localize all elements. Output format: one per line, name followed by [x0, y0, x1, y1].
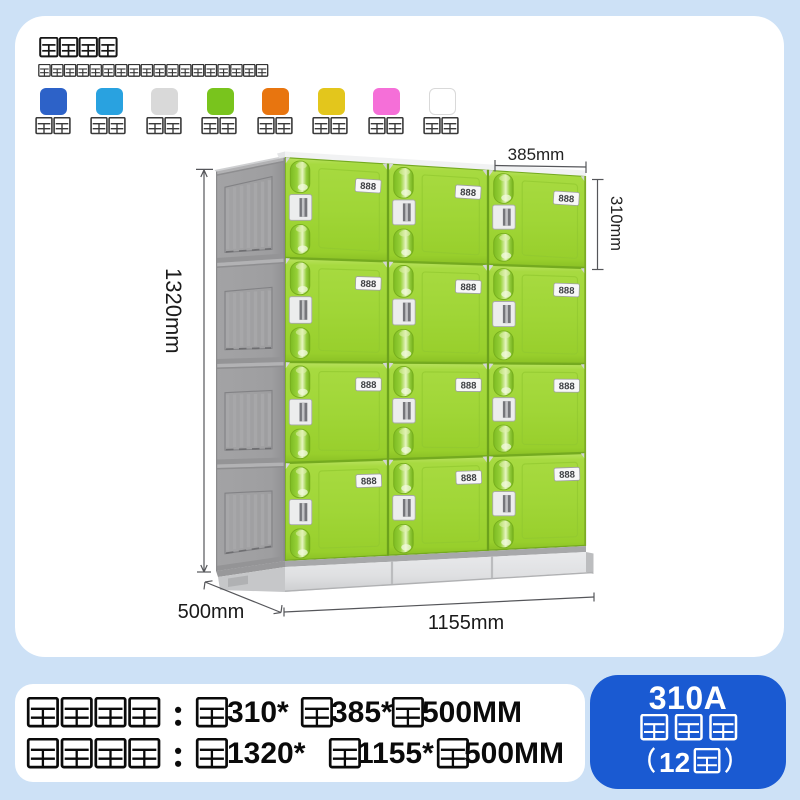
svg-text:888: 888	[361, 380, 377, 391]
svg-text:888: 888	[461, 380, 477, 391]
svg-text:888: 888	[558, 285, 574, 297]
svg-text:500mm: 500mm	[178, 601, 245, 623]
svg-text:888: 888	[461, 473, 477, 485]
svg-text:888: 888	[460, 187, 477, 199]
svg-text:1155mm: 1155mm	[428, 612, 504, 634]
svg-text:888: 888	[361, 476, 377, 488]
svg-text:385mm: 385mm	[508, 145, 565, 164]
svg-text:888: 888	[360, 279, 376, 291]
svg-text:310mm: 310mm	[607, 196, 625, 251]
svg-text:1320mm: 1320mm	[161, 268, 186, 354]
svg-text:888: 888	[460, 282, 476, 294]
svg-text:888: 888	[559, 381, 575, 392]
svg-text:888: 888	[360, 181, 377, 193]
svg-text:888: 888	[558, 193, 575, 205]
svg-text:888: 888	[559, 469, 575, 481]
